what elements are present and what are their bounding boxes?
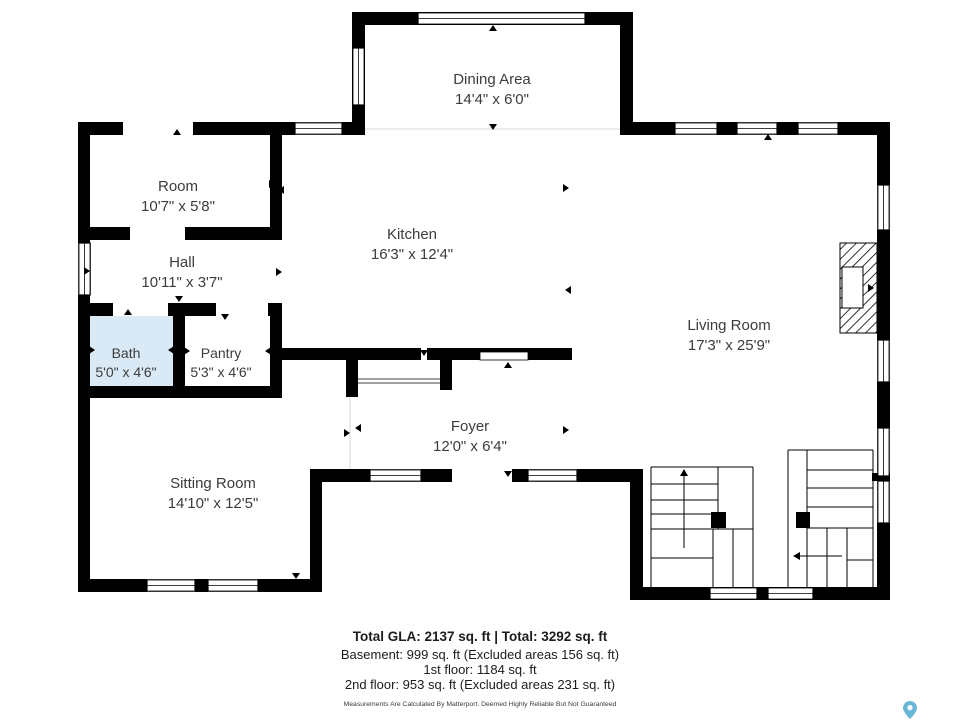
- room-dims-dining: 14'4" x 6'0": [455, 91, 529, 108]
- window: [675, 123, 717, 134]
- matterport-pin-icon: [903, 701, 917, 719]
- room-label-hall: Hall: [169, 254, 195, 271]
- pocket-door: [480, 352, 528, 360]
- room-label-sitting: Sitting Room: [170, 475, 256, 492]
- closet-doors: [358, 379, 440, 383]
- window: [370, 470, 421, 481]
- room-label-living: Living Room: [687, 317, 770, 334]
- staircase-left: [651, 467, 753, 587]
- window: [798, 123, 838, 134]
- room-dims-room: 10'7" x 5'8": [141, 198, 215, 215]
- summary-footer: Total GLA: 2137 sq. ft | Total: 3292 sq.…: [0, 629, 960, 708]
- window: [418, 13, 585, 24]
- room-label-kitchen: Kitchen: [387, 226, 437, 243]
- room-dims-sitting: 14'10" x 12'5": [168, 495, 259, 512]
- first-floor-line: 1st floor: 1184 sq. ft: [0, 662, 960, 677]
- second-floor-line: 2nd floor: 953 sq. ft (Excluded areas 23…: [0, 677, 960, 692]
- room-dims-kitchen: 16'3" x 12'4": [371, 246, 453, 263]
- room-dims-bath: 5'0" x 4'6": [95, 364, 156, 380]
- room-labels: Dining Area 14'4" x 6'0" Room 10'7" x 5'…: [95, 71, 770, 512]
- room-label-room: Room: [158, 178, 198, 195]
- room-dims-living: 17'3" x 25'9": [688, 337, 770, 354]
- window: [768, 588, 813, 599]
- window: [710, 588, 757, 599]
- window: [878, 185, 889, 230]
- window: [147, 580, 195, 591]
- pin-hole: [907, 705, 912, 710]
- floorplan-canvas: Dining Area 14'4" x 6'0" Room 10'7" x 5'…: [0, 0, 960, 720]
- room-label-foyer: Foyer: [451, 418, 489, 435]
- window: [528, 470, 577, 481]
- room-label-pantry: Pantry: [201, 345, 241, 361]
- window: [878, 481, 889, 523]
- stair-up-arrow: [680, 469, 688, 476]
- window: [878, 428, 889, 476]
- window: [353, 48, 364, 105]
- staircase-right: [788, 450, 873, 587]
- window: [878, 340, 889, 382]
- total-gla-line: Total GLA: 2137 sq. ft | Total: 3292 sq.…: [0, 629, 960, 644]
- floorplan-page: Dining Area 14'4" x 6'0" Room 10'7" x 5'…: [0, 0, 960, 720]
- basement-line: Basement: 999 sq. ft (Excluded areas 156…: [0, 647, 960, 662]
- window: [208, 580, 258, 591]
- room-dims-pantry: 5'3" x 4'6": [190, 364, 251, 380]
- disclaimer-text: Measurements Are Calculated By Matterpor…: [0, 701, 960, 708]
- window: [737, 123, 777, 134]
- room-label-dining: Dining Area: [453, 71, 531, 88]
- room-label-bath: Bath: [112, 345, 141, 361]
- window: [295, 123, 342, 134]
- stair-down-arrow: [793, 552, 800, 560]
- room-dims-hall: 10'11" x 3'7": [141, 274, 222, 291]
- room-dims-foyer: 12'0" x 6'4": [433, 438, 507, 455]
